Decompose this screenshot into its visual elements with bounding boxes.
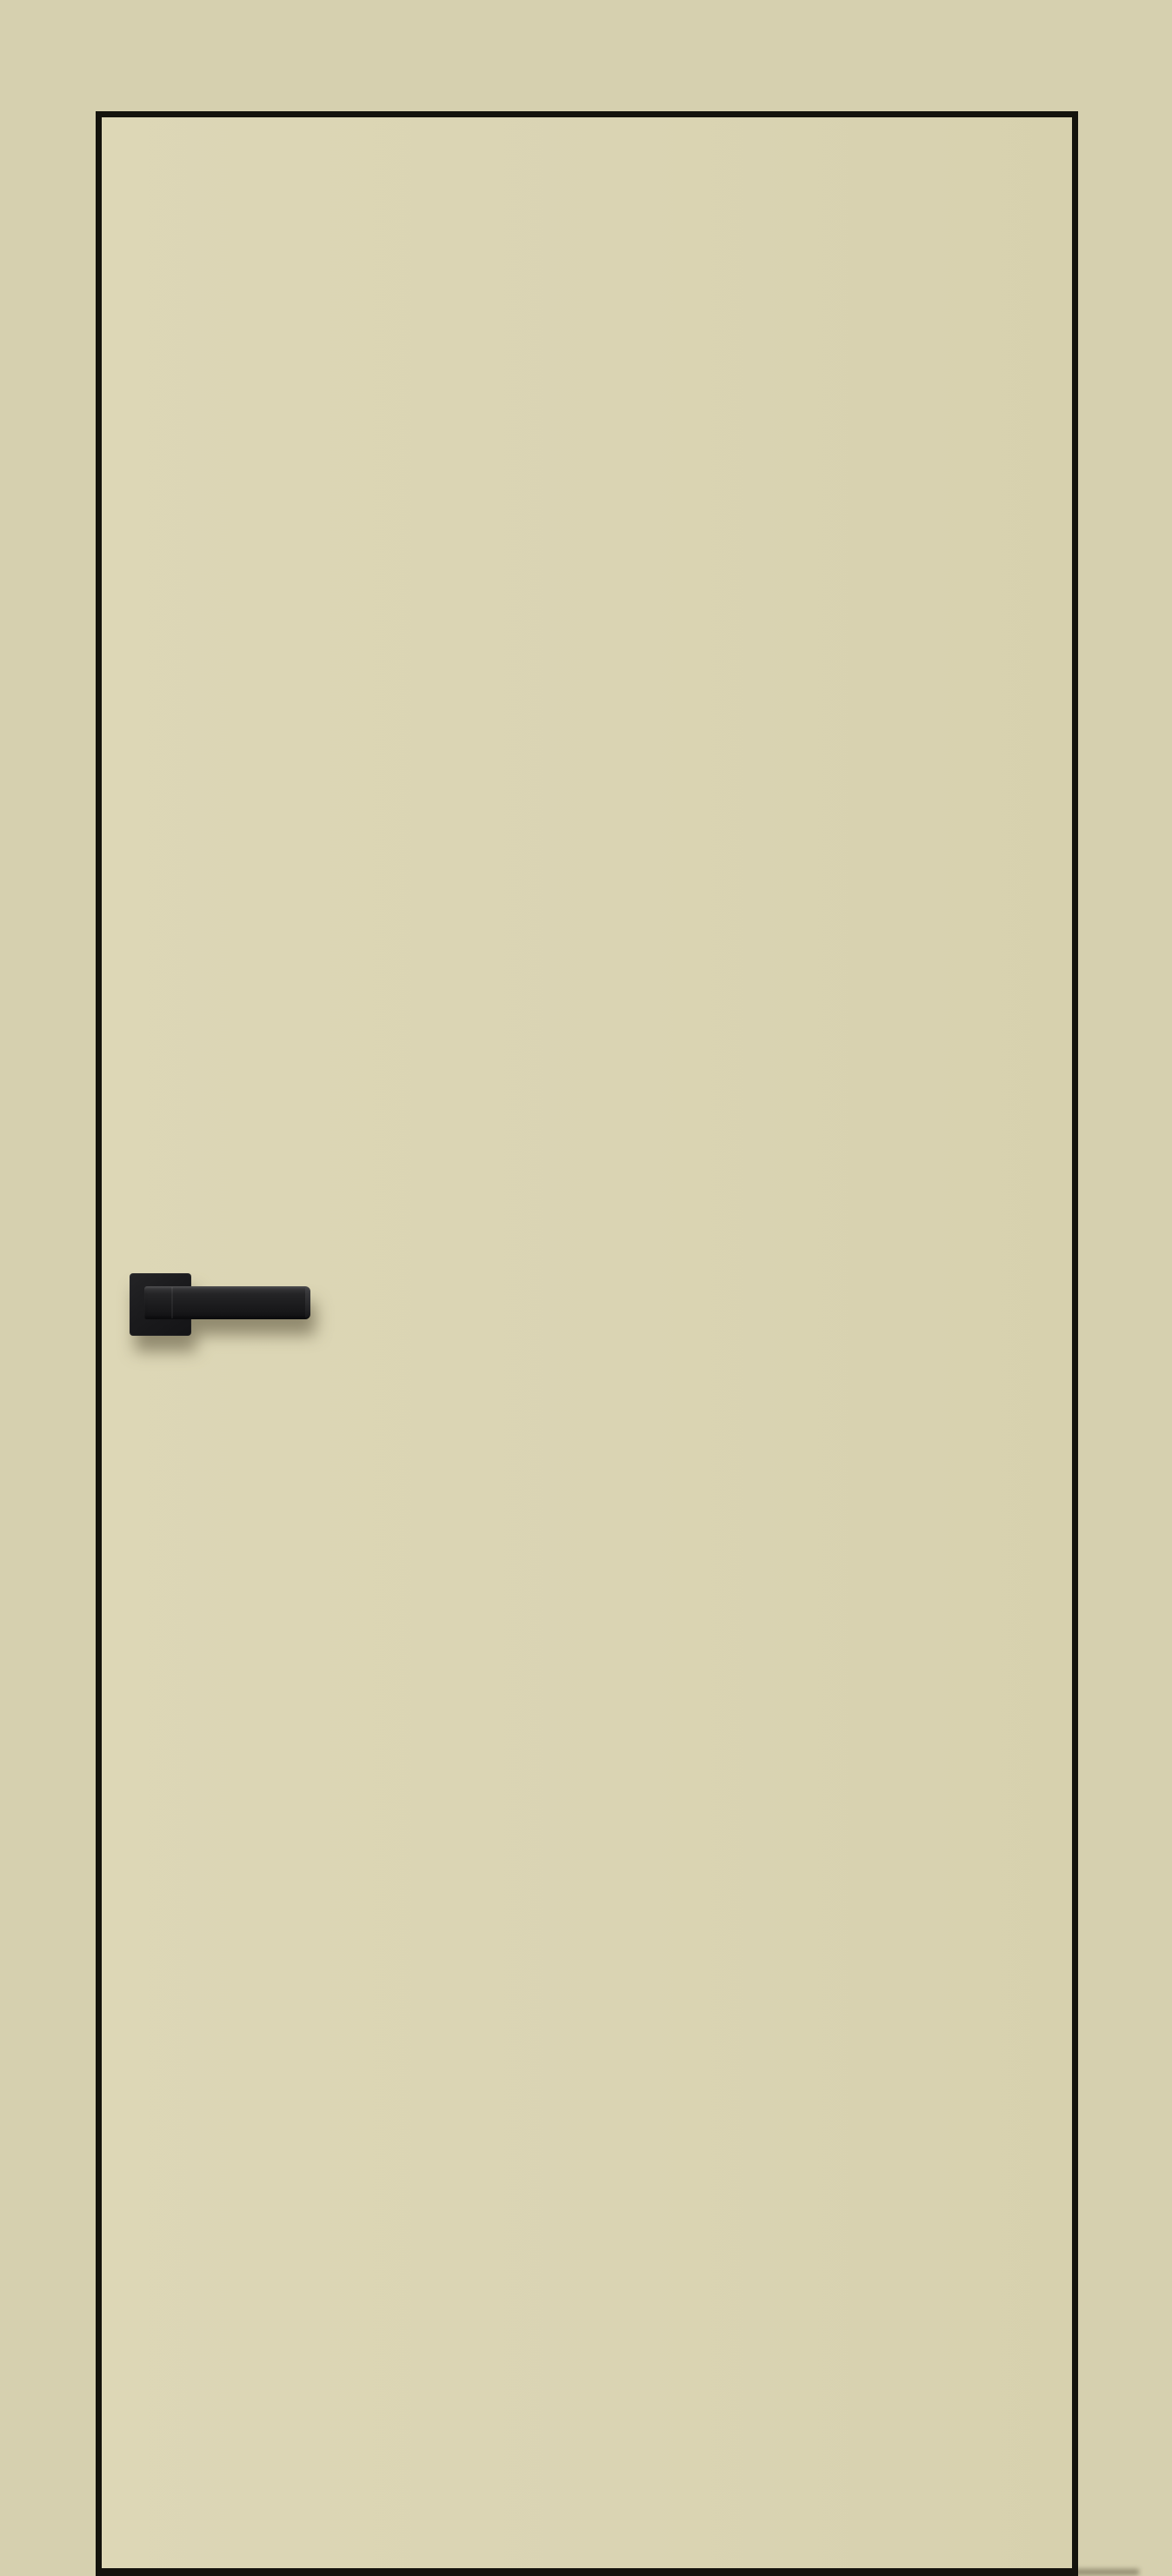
- door-leaf: [96, 111, 1078, 2576]
- product-photo-scene: [0, 0, 1172, 2576]
